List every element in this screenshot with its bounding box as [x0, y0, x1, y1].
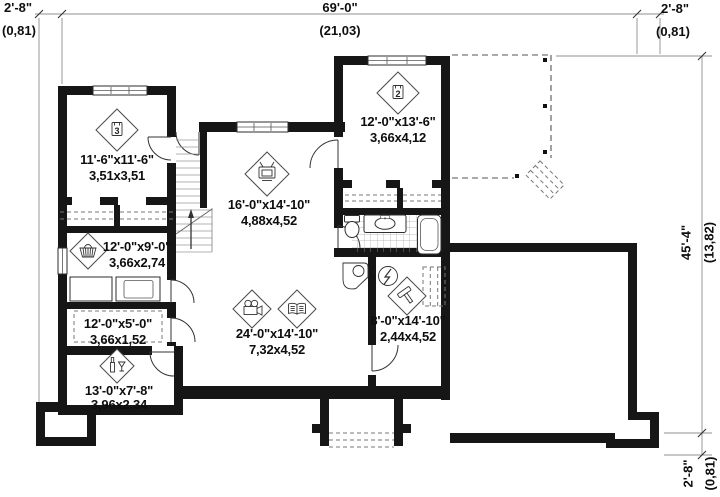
deck-post [543, 104, 547, 108]
room-size-m: 3,66x1,52 [48, 332, 188, 348]
room-label-bedroom-3: 11'-6"x11'-6" 3,51x3,51 [42, 152, 192, 183]
door-cellar [150, 352, 174, 376]
room-label-storage: 12'-0"x5'-0" 3,66x1,52 [48, 316, 188, 347]
room-size-m: 3,96x2,34 [49, 398, 189, 412]
door-laundry [171, 280, 194, 303]
window [237, 122, 288, 132]
room-size-ft: 16'-0"x14'-10" [194, 197, 344, 213]
electrical-panel-icon [379, 267, 398, 286]
room-size-ft: 11'-6"x11'-6" [42, 152, 192, 168]
deck-post [543, 150, 547, 154]
room-label-workshop: 8'-0"x14'-10" 2,44x4,52 [338, 313, 478, 344]
dim-top-right-ft: 2'-8" [661, 1, 689, 16]
room-size-ft: 12'-0"x5'-0" [48, 316, 188, 332]
room-number: 3 [114, 126, 119, 136]
room-number-badge: 2 [393, 86, 403, 100]
marker-family-room [245, 152, 289, 196]
room-size-m: 3,51x3,51 [42, 168, 192, 184]
room-size-ft: 13'-0"x7'-8" [49, 384, 189, 398]
dim-top-left-m: (0,81) [2, 23, 36, 38]
dim-top-ft: 69'-0" [305, 0, 375, 15]
room-size-ft: 12'-0"x9'-0" [67, 239, 207, 255]
marker-rec-room-book [278, 290, 316, 328]
dim-bottom-right-ft: 2'-8" [681, 439, 696, 497]
room-size-m: 7,32x4,52 [202, 342, 352, 358]
room-size-m: 2,44x4,52 [338, 329, 478, 345]
dim-top-m: (21,03) [303, 23, 377, 38]
deck-stairs [526, 161, 564, 199]
marker-rec-room-projector [233, 290, 271, 328]
room-number-badge: 3 [112, 123, 122, 137]
bathroom [345, 215, 442, 254]
book-icon [289, 303, 306, 314]
bathtub [418, 215, 442, 254]
room-size-m: 3,66x2,74 [67, 255, 207, 271]
marker-bedroom-2: 2 [377, 72, 419, 114]
room-label-bedroom-2: 12'-0"x13'-6" 3,66x4,12 [323, 114, 473, 145]
dim-top-right-m: (0,81) [656, 24, 690, 39]
door-workshop [372, 345, 398, 371]
room-size-m: 3,66x4,12 [323, 130, 473, 146]
room-size-m: 4,88x4,52 [194, 213, 344, 229]
room-size-ft: 8'-0"x14'-10" [338, 313, 478, 329]
room-label-laundry: 12'-0"x9'-0" 3,66x2,74 [67, 239, 207, 270]
dim-right-m: (13,82) [702, 208, 717, 278]
sink-vanity [364, 215, 406, 233]
room-label-family-room: 16'-0"x14'-10" 4,88x4,52 [194, 197, 344, 228]
window [93, 86, 147, 95]
basement-entry-steps [329, 433, 394, 447]
room-label-rec-room: 24'-0"x14'-10" 7,32x4,52 [202, 326, 352, 357]
washer [70, 277, 112, 301]
room-size-ft: 24'-0"x14'-10" [202, 326, 352, 342]
deck-post [515, 174, 519, 178]
window [368, 56, 426, 65]
room-number: 2 [395, 89, 400, 99]
toilet [345, 216, 360, 238]
window [58, 248, 67, 274]
room-size-ft: 12'-0"x13'-6" [323, 114, 473, 130]
basement-floor-plan: 3 2 [0, 0, 720, 497]
water-heater-icon [343, 263, 368, 289]
marker-bedroom-3: 3 [96, 109, 138, 151]
laundry-appliances [70, 277, 160, 301]
room-label-cellar: 13'-0"x7'-8" 3,96x2,34 [49, 384, 189, 411]
dim-top-left-ft: 2'-8" [4, 0, 32, 15]
dim-bottom-right-m: (0,81) [703, 439, 718, 497]
dim-right-ft: 45'-4" [679, 208, 694, 278]
deck-post [543, 58, 547, 62]
